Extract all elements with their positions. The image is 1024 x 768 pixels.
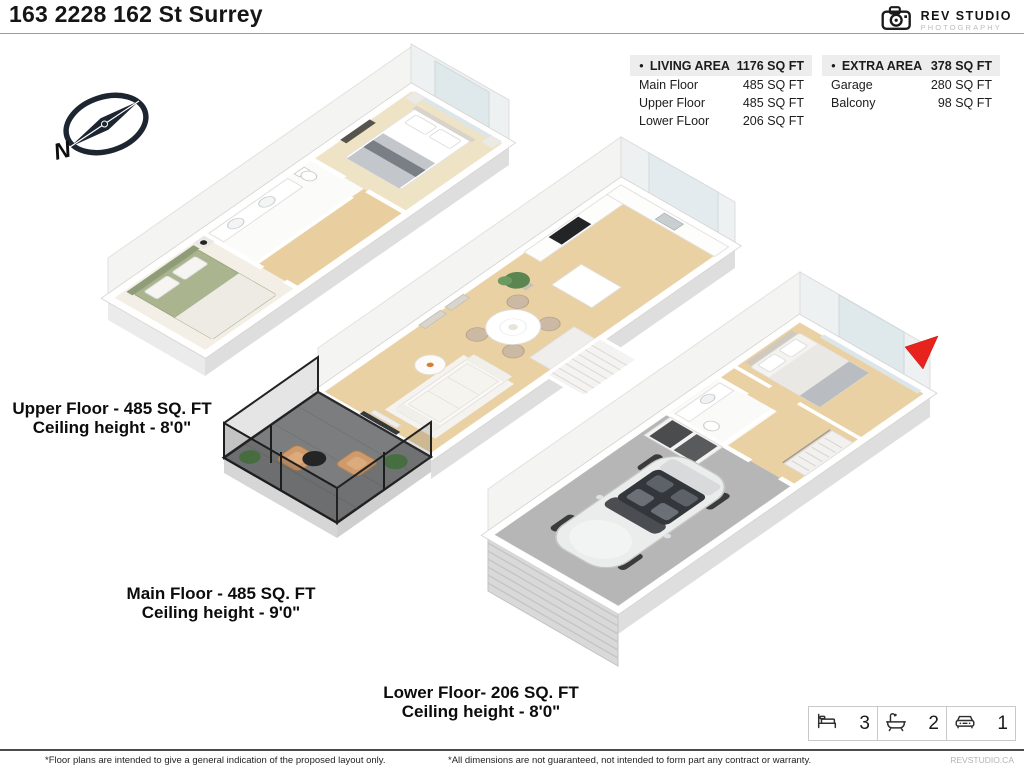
table-row: Lower FLoor 206 SQ FT <box>630 112 812 130</box>
car-icon <box>953 711 977 736</box>
living-area-table: ● LIVING AREA 1176 SQ FT Main Floor 485 … <box>630 55 812 130</box>
bullet-icon: ● <box>831 61 836 70</box>
extra-area-table: ● EXTRA AREA 378 SQ FT Garage 280 SQ FT … <box>822 55 1000 112</box>
upper-floor-ceiling: Ceiling height - 8'0" <box>12 418 211 437</box>
garage-count: 1 <box>997 713 1008 735</box>
upper-floor-area: Upper Floor - 485 SQ. FT <box>12 399 211 418</box>
row-label: Garage <box>831 78 873 92</box>
disclaimer-right: *All dimensions are not guaranteed, not … <box>448 755 811 766</box>
bath-icon <box>884 710 908 737</box>
table-row: Garage 280 SQ FT <box>822 76 1000 94</box>
row-label: Upper Floor <box>639 96 705 110</box>
studio-logo: REV STUDIO PHOTOGRAPHY <box>880 4 1012 37</box>
beds-summary: 3 <box>808 706 878 741</box>
baths-summary: 2 <box>878 706 947 741</box>
main-floor-area: Main Floor - 485 SQ. FT <box>127 584 316 603</box>
upper-floor-label: Upper Floor - 485 SQ. FT Ceiling height … <box>12 399 211 437</box>
row-value: 98 SQ FT <box>938 96 992 110</box>
extra-area-total: 378 SQ FT <box>931 59 992 73</box>
living-area-total: 1176 SQ FT <box>737 59 804 73</box>
footer-divider <box>0 749 1024 751</box>
living-area-header: ● LIVING AREA 1176 SQ FT <box>630 55 812 76</box>
baths-count: 2 <box>928 713 939 735</box>
bullet-icon: ● <box>639 61 644 70</box>
page-title: 163 2228 162 St Surrey <box>9 1 263 28</box>
logo-brand: REV STUDIO <box>921 10 1012 23</box>
beds-count: 3 <box>859 713 870 735</box>
lower-floor-label: Lower Floor- 206 SQ. FT Ceiling height -… <box>383 683 579 721</box>
garage-summary: 1 <box>947 706 1016 741</box>
floorplan-illustration: N <box>0 0 1024 768</box>
bed-icon <box>815 711 839 736</box>
website-label: REVSTUDIO.CA <box>950 755 1014 765</box>
row-label: Main Floor <box>639 78 698 92</box>
table-row: Balcony 98 SQ FT <box>822 94 1000 112</box>
compass-icon: N <box>51 86 153 165</box>
header-divider <box>0 33 1024 34</box>
main-floor-label: Main Floor - 485 SQ. FT Ceiling height -… <box>127 584 316 622</box>
row-value: 280 SQ FT <box>931 78 992 92</box>
main-floor-ceiling: Ceiling height - 9'0" <box>127 603 316 622</box>
lower-floor-area: Lower Floor- 206 SQ. FT <box>383 683 579 702</box>
row-value: 485 SQ FT <box>743 78 804 92</box>
row-value: 485 SQ FT <box>743 96 804 110</box>
extra-area-header: ● EXTRA AREA 378 SQ FT <box>822 55 1000 76</box>
living-area-title: LIVING AREA <box>650 59 737 73</box>
row-label: Balcony <box>831 96 875 110</box>
property-summary: 3 2 1 <box>808 706 1016 741</box>
table-row: Main Floor 485 SQ FT <box>630 76 812 94</box>
lower-floor-ceiling: Ceiling height - 8'0" <box>383 702 579 721</box>
row-label: Lower FLoor <box>639 114 709 128</box>
disclaimer-left: *Floor plans are intended to give a gene… <box>45 755 385 766</box>
camera-icon <box>880 4 916 37</box>
logo-subtitle: PHOTOGRAPHY <box>921 24 1012 32</box>
row-value: 206 SQ FT <box>743 114 804 128</box>
table-row: Upper Floor 485 SQ FT <box>630 94 812 112</box>
extra-area-title: EXTRA AREA <box>842 59 931 73</box>
